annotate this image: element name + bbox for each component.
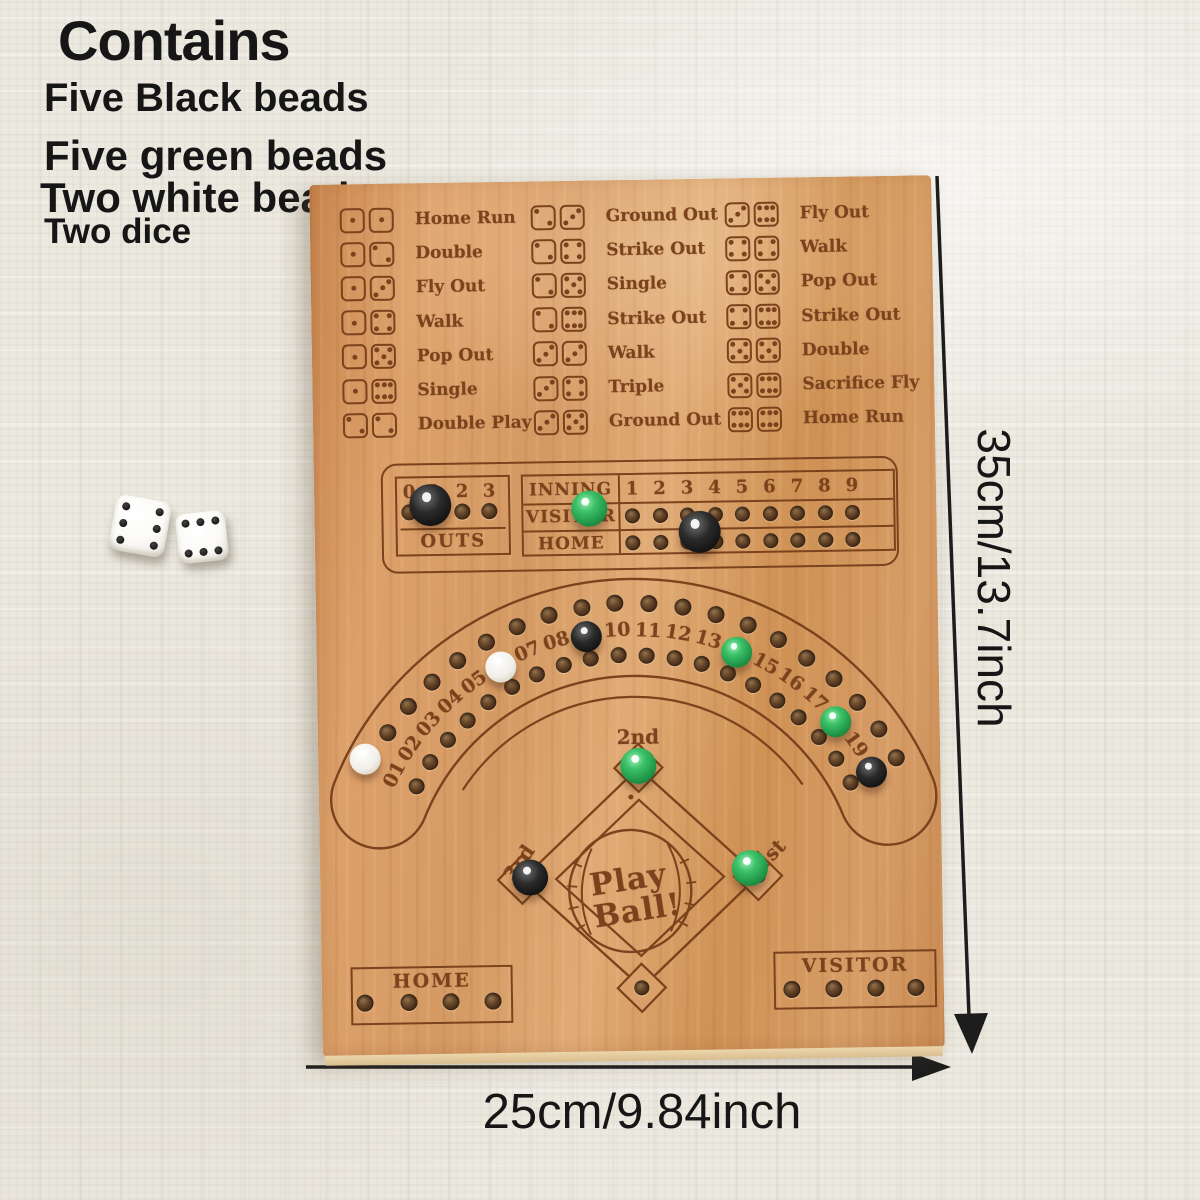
- home-inning-hole: [818, 533, 833, 548]
- inning-number: 5: [736, 477, 749, 498]
- legend-die: [372, 412, 397, 437]
- width-dimension-label: 25cm/9.84inch: [483, 1084, 802, 1140]
- die-pip: [199, 548, 208, 557]
- die-pip: [374, 292, 379, 297]
- die-pip: [549, 345, 554, 350]
- outs-hole: [481, 503, 497, 519]
- inning-number: 6: [763, 476, 776, 497]
- legend-die: [754, 201, 779, 226]
- die-pip: [729, 252, 734, 257]
- die-pip: [351, 286, 356, 291]
- die-pip: [374, 348, 379, 353]
- legend-die: [560, 238, 585, 263]
- die-pip: [381, 354, 386, 359]
- legend-label: Walk: [800, 237, 847, 258]
- die-pip: [387, 348, 392, 353]
- die-pip: [766, 388, 771, 393]
- legend-row: Single: [532, 270, 668, 300]
- die-pip: [352, 389, 357, 394]
- die-pip: [579, 426, 584, 431]
- die-pip: [767, 410, 772, 415]
- die-pip: [543, 352, 548, 357]
- die-pip: [550, 379, 555, 384]
- legend-row: Fly Out: [341, 273, 486, 303]
- die-pip: [577, 276, 582, 281]
- die-pip: [549, 324, 554, 329]
- die-pip: [767, 423, 772, 428]
- die-pip: [119, 518, 128, 527]
- die-pip: [731, 376, 736, 381]
- visitor-inning-hole: [817, 505, 832, 520]
- die-pip: [565, 289, 570, 294]
- legend-die: [532, 273, 557, 298]
- visitor-score-hole: [907, 979, 924, 996]
- legend-row: Double: [727, 335, 870, 365]
- die-pip: [537, 392, 542, 397]
- die-pip: [729, 240, 734, 245]
- die-pip: [571, 283, 576, 288]
- die-pip: [579, 413, 584, 418]
- contains-item-dice: Two dice: [44, 212, 191, 252]
- die-pip: [766, 348, 771, 353]
- inning-number: 1: [626, 478, 639, 499]
- legend-die: [728, 407, 753, 432]
- die-pip: [730, 308, 735, 313]
- die-pip: [579, 379, 584, 384]
- die-pip: [759, 286, 764, 291]
- die-pip: [547, 221, 552, 226]
- die-pip: [771, 273, 776, 278]
- legend-die: [340, 208, 365, 233]
- die-pip: [211, 516, 220, 525]
- inning-number: 9: [846, 475, 859, 496]
- home-score-hole: [400, 994, 417, 1011]
- die-pip: [730, 342, 735, 347]
- die-pip: [766, 376, 771, 381]
- product-photo-stage: { "annotations": { "contains_title": "Co…: [0, 0, 1200, 1200]
- die-pip: [742, 274, 747, 279]
- width-arrowhead-icon: [912, 1053, 951, 1081]
- die-pip: [381, 382, 386, 387]
- height-dimension-label: 35cm/13.7inch: [967, 428, 1021, 727]
- die-pip: [565, 323, 570, 328]
- die-pip: [347, 417, 352, 422]
- die-pip: [757, 205, 762, 210]
- die-pip: [573, 419, 578, 424]
- legend-die: [562, 341, 587, 366]
- die-pip: [386, 279, 391, 284]
- die-pip: [571, 323, 576, 328]
- die-pip: [760, 410, 765, 415]
- legend-die: [754, 235, 779, 260]
- legend-row: Strike Out: [726, 300, 900, 331]
- scoreboard: 0123 OUTS INNING VISITOR HOME 123456789: [381, 456, 900, 574]
- die-pip: [742, 286, 747, 291]
- die-pip: [764, 205, 769, 210]
- die-pip: [155, 508, 164, 517]
- die-pip: [386, 258, 391, 263]
- die-pip: [772, 320, 777, 325]
- die-pip: [732, 423, 737, 428]
- contains-item-black-beads: Five Black beads: [44, 76, 369, 121]
- die-pip: [567, 426, 572, 431]
- legend-row: Ground Out: [531, 201, 719, 232]
- home-inning-hole: [735, 534, 750, 549]
- die-pip: [196, 518, 205, 527]
- legend-row: Strike Out: [531, 235, 705, 266]
- die-pip: [771, 252, 776, 257]
- legend-label: Fly Out: [416, 277, 486, 298]
- legend-die: [340, 242, 365, 267]
- white-die[interactable]: [175, 510, 230, 565]
- die-pip: [537, 358, 542, 363]
- legend-die: [560, 204, 585, 229]
- legend-die: [369, 207, 394, 232]
- legend-label: Triple: [608, 376, 664, 397]
- die-pip: [387, 313, 392, 318]
- legend-die: [561, 307, 586, 332]
- die-pip: [773, 376, 778, 381]
- die-pip: [577, 310, 582, 315]
- inning-number: 3: [681, 477, 694, 498]
- die-pip: [350, 218, 355, 223]
- home-inning-hole: [625, 536, 640, 551]
- die-pip: [379, 217, 384, 222]
- die-pip: [773, 410, 778, 415]
- die-pip: [373, 245, 378, 250]
- die-pip: [744, 376, 749, 381]
- track-outer-hole: [770, 631, 787, 648]
- home-score-hole: [484, 993, 501, 1010]
- legend-die: [371, 344, 396, 369]
- die-pip: [765, 280, 770, 285]
- inning-number: 7: [791, 476, 804, 497]
- die-pip: [773, 423, 778, 428]
- legend-die: [341, 276, 366, 301]
- legend-die: [726, 304, 751, 329]
- legend-row: Ground Out: [534, 406, 722, 437]
- die-pip: [375, 395, 380, 400]
- die-pip: [376, 416, 381, 421]
- die-pip: [375, 382, 380, 387]
- contains-item-green-beads: Five green beads: [44, 132, 387, 180]
- visitor-inning-hole: [625, 508, 640, 523]
- legend-die: [370, 275, 395, 300]
- die-pip: [535, 243, 540, 248]
- legend-die: [727, 338, 752, 363]
- die-pip: [578, 323, 583, 328]
- die-pip: [731, 355, 736, 360]
- legend-label: Pop Out: [417, 345, 494, 366]
- legend-die: [725, 202, 750, 227]
- die-pip: [564, 276, 569, 281]
- legend-die: [342, 379, 367, 404]
- legend-die: [756, 372, 781, 397]
- die-pip: [550, 413, 555, 418]
- die-pip: [770, 217, 775, 222]
- die-pip: [579, 391, 584, 396]
- die-pip: [116, 535, 125, 544]
- die-pip: [536, 311, 541, 316]
- legend-die: [757, 406, 782, 431]
- die-pip: [535, 277, 540, 282]
- die-pip: [744, 410, 749, 415]
- die-pip: [737, 383, 742, 388]
- legend-label: Walk: [416, 311, 463, 332]
- legend-label: Double: [415, 242, 483, 263]
- legend-row: Walk: [725, 233, 847, 263]
- legend-die: [725, 236, 750, 261]
- legend-label: Home Run: [415, 208, 516, 230]
- legend-die: [343, 413, 368, 438]
- home-score-label: HOME: [353, 969, 511, 993]
- outs-number: 3: [483, 481, 496, 502]
- outs-number: 2: [456, 481, 469, 502]
- legend-row: Double: [340, 238, 483, 268]
- die-pip: [738, 423, 743, 428]
- die-pip: [565, 311, 570, 316]
- die-pip: [387, 360, 392, 365]
- die-pip: [770, 239, 775, 244]
- home-score-hole: [442, 993, 459, 1010]
- die-pip: [566, 357, 571, 362]
- home-inning-hole: [763, 533, 778, 548]
- die-pip: [773, 388, 778, 393]
- visitor-score-label: VISITOR: [775, 953, 934, 977]
- die-pip: [538, 426, 543, 431]
- legend-die: [533, 376, 558, 401]
- die-pip: [577, 289, 582, 294]
- die-pip: [563, 221, 568, 226]
- outs-hole: [454, 503, 470, 519]
- die-pip: [564, 255, 569, 260]
- second-base-label: 2nd: [616, 725, 659, 750]
- legend-label: Double Play: [418, 413, 532, 435]
- die-pip: [375, 360, 380, 365]
- die-pip: [744, 423, 749, 428]
- legend-label: Home Run: [803, 407, 904, 429]
- outs-label: OUTS: [398, 530, 509, 553]
- home-inning-hole: [653, 535, 668, 550]
- die-pip: [761, 423, 766, 428]
- visitor-score-box: VISITOR: [773, 949, 937, 1010]
- legend-die: [531, 205, 556, 230]
- die-pip: [743, 320, 748, 325]
- white-die[interactable]: [108, 494, 173, 559]
- visitor-score-hole: [867, 980, 884, 997]
- die-pip: [764, 218, 769, 223]
- die-pip: [381, 395, 386, 400]
- die-pip: [577, 255, 582, 260]
- die-pip: [566, 392, 571, 397]
- legend-die: [342, 344, 367, 369]
- die-pip: [374, 314, 379, 319]
- legend-label: Walk: [608, 342, 655, 363]
- die-pip: [737, 348, 742, 353]
- legend-label: Double: [802, 339, 870, 360]
- die-pip: [758, 239, 763, 244]
- legend-label: Fly Out: [800, 202, 870, 223]
- legend-label: Ground Out: [609, 410, 722, 432]
- die-pip: [771, 286, 776, 291]
- die-pip: [578, 345, 583, 350]
- visitor-score-hole: [783, 981, 800, 998]
- die-pip: [352, 355, 357, 360]
- die-pip: [214, 546, 223, 555]
- die-pip: [729, 274, 734, 279]
- legend-label: Single: [417, 379, 478, 400]
- legend-die: [561, 272, 586, 297]
- legend-die: [341, 310, 366, 335]
- legend-row: Walk: [533, 338, 655, 368]
- legend-label: Pop Out: [801, 270, 878, 291]
- legend-die: [756, 338, 781, 363]
- legend-row: Home Run: [340, 204, 516, 235]
- legend-label: Single: [607, 274, 668, 295]
- die-pip: [743, 355, 748, 360]
- visitor-inning-hole: [735, 507, 750, 522]
- legend-row: Sacrifice Fly: [727, 368, 919, 399]
- die-pip: [760, 389, 765, 394]
- die-pip: [772, 342, 777, 347]
- legend-die: [369, 241, 394, 266]
- die-pip: [758, 252, 763, 257]
- legend-die: [726, 270, 751, 295]
- legend-label: Strike Out: [606, 239, 705, 261]
- legend-die: [531, 239, 556, 264]
- legend-row: Triple: [533, 372, 664, 402]
- die-pip: [772, 354, 777, 359]
- legend-row: Home Run: [728, 403, 904, 434]
- die-pip: [351, 320, 356, 325]
- die-pip: [771, 307, 776, 312]
- height-arrowhead-icon: [954, 1013, 988, 1054]
- die-pip: [181, 519, 190, 528]
- legend-die: [562, 375, 587, 400]
- contains-title: Contains: [58, 8, 290, 73]
- home-score-box: HOME: [350, 965, 513, 1026]
- die-pip: [759, 308, 764, 313]
- legend-row: Pop Out: [726, 266, 878, 296]
- legend-row: Fly Out: [724, 198, 869, 228]
- inning-number: 2: [653, 478, 666, 499]
- legend-row: Pop Out: [342, 341, 494, 371]
- die-pip: [374, 326, 379, 331]
- legend-row: Single: [342, 375, 478, 405]
- die-pip: [741, 239, 746, 244]
- die-pip: [760, 376, 765, 381]
- die-pip: [730, 321, 735, 326]
- die-pip: [387, 326, 392, 331]
- die-pip: [566, 413, 571, 418]
- die-pip: [765, 307, 770, 312]
- die-pip: [122, 502, 131, 511]
- die-pip: [742, 308, 747, 313]
- die-pip: [388, 382, 393, 387]
- legend-die: [755, 269, 780, 294]
- game-board: Home RunDoubleFly OutWalkPop OutSingleDo…: [309, 175, 945, 1057]
- die-pip: [572, 351, 577, 356]
- die-pip: [731, 389, 736, 394]
- die-pip: [728, 218, 733, 223]
- die-pip: [534, 209, 539, 214]
- legend-label: Sacrifice Fly: [802, 372, 919, 394]
- legend-die: [370, 310, 395, 335]
- die-pip: [380, 286, 385, 291]
- die-pip: [735, 212, 740, 217]
- die-pip: [548, 289, 553, 294]
- die-pip: [742, 252, 747, 257]
- legend-die: [534, 410, 559, 435]
- inning-number: 8: [818, 475, 831, 496]
- die-pip: [730, 286, 735, 291]
- die-pip: [576, 208, 581, 213]
- die-pip: [566, 379, 571, 384]
- die-pip: [149, 541, 158, 550]
- die-pip: [576, 242, 581, 247]
- die-pip: [350, 252, 355, 257]
- die-pip: [152, 524, 161, 533]
- die-pip: [738, 411, 743, 416]
- die-pip: [759, 320, 764, 325]
- legend-die: [532, 307, 557, 332]
- legend-die: [533, 341, 558, 366]
- inning-header: INNING: [523, 479, 618, 500]
- legend-label: Ground Out: [606, 205, 719, 227]
- legend-die: [727, 373, 752, 398]
- die-pip: [184, 549, 193, 558]
- die-pip: [388, 394, 393, 399]
- home-inning-hole: [845, 532, 860, 547]
- pitcher-dot: [628, 794, 633, 799]
- home-inning-hole: [790, 533, 805, 548]
- legend-row: Strike Out: [532, 303, 706, 334]
- legend-die: [755, 304, 780, 329]
- die-pip: [741, 205, 746, 210]
- visitor-inning-hole: [790, 506, 805, 521]
- visitor-inning-hole: [762, 506, 777, 521]
- legend-die: [563, 409, 588, 434]
- legend-label: Strike Out: [607, 307, 706, 329]
- die-pip: [770, 205, 775, 210]
- die-pip: [758, 273, 763, 278]
- die-pip: [543, 386, 548, 391]
- die-pip: [757, 218, 762, 223]
- legend-label: Strike Out: [801, 304, 900, 326]
- legend-row: Walk: [341, 307, 463, 337]
- die-pip: [759, 342, 764, 347]
- die-pip: [548, 255, 553, 260]
- legend-die: [371, 378, 396, 403]
- die-pip: [388, 429, 393, 434]
- visitor-score-hole: [825, 980, 842, 997]
- die-pip: [571, 311, 576, 316]
- die-pip: [760, 354, 765, 359]
- die-pip: [359, 429, 364, 434]
- die-pip: [765, 320, 770, 325]
- legend-row: Double Play: [343, 409, 532, 440]
- die-pip: [564, 242, 569, 247]
- die-pip: [731, 411, 736, 416]
- inning-number: 4: [708, 477, 721, 498]
- visitor-inning-hole: [652, 508, 667, 523]
- die-pip: [544, 420, 549, 425]
- die-pip: [744, 389, 749, 394]
- visitor-inning-hole: [845, 505, 860, 520]
- home-score-hole: [356, 995, 373, 1012]
- home-row-label: HOME: [524, 533, 619, 554]
- die-pip: [570, 214, 575, 219]
